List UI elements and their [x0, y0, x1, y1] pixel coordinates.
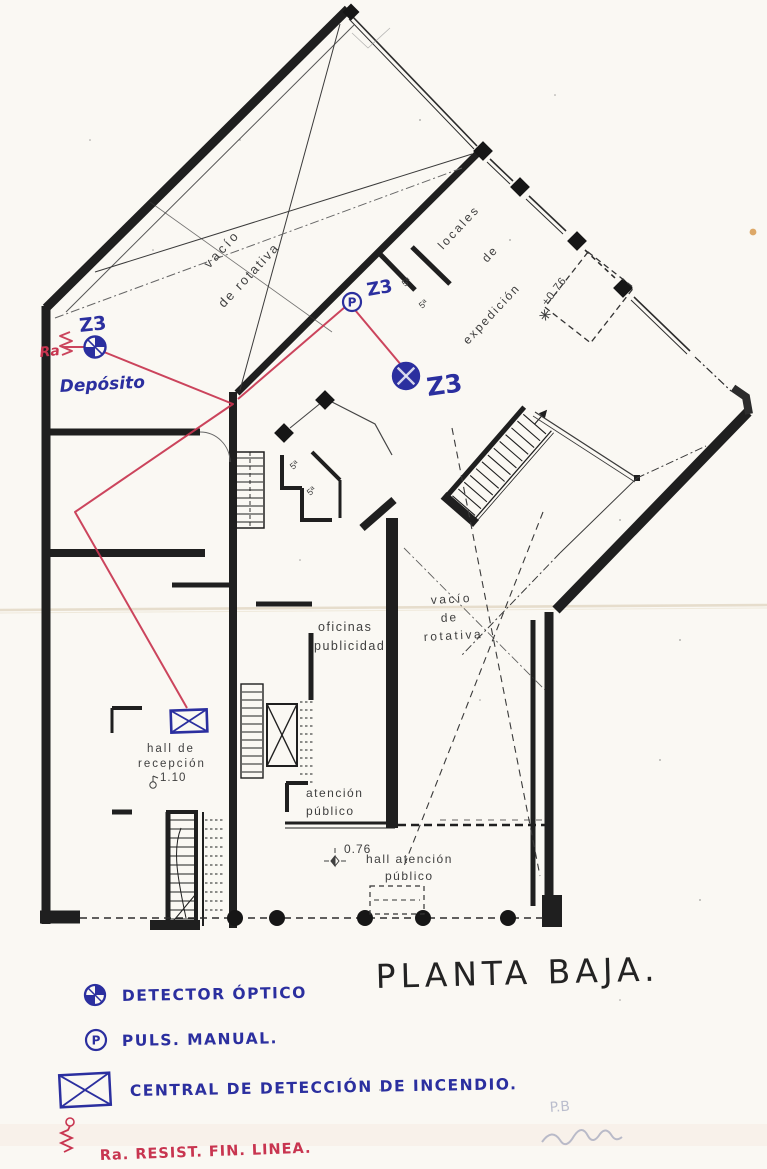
room-tag: 5ª	[288, 458, 301, 471]
reception-stair	[150, 812, 224, 928]
paper-stain	[750, 229, 757, 236]
reception-label-2: recepción	[138, 758, 206, 770]
manual-callpoint-icon: P	[343, 293, 361, 311]
resistor-tag: Ra	[39, 343, 61, 361]
pencil-initials: P.B	[549, 1099, 570, 1116]
room-tag: 5ª	[417, 297, 430, 310]
offices-label-2: publicidad	[314, 639, 385, 653]
svg-text:P: P	[92, 1034, 101, 1048]
diagonal-staircase	[441, 395, 563, 527]
paper-crease	[0, 605, 767, 1146]
expedition-level-mark: +0.76	[532, 275, 574, 322]
zone-label: Z3	[425, 368, 464, 402]
optical-detector-icon	[85, 985, 105, 1005]
zone-label: Z3	[78, 312, 107, 337]
exterior-walls	[40, 9, 748, 927]
attention-hall-level-mark	[324, 848, 346, 866]
attention-hall-label-1: hall atención	[366, 852, 453, 866]
attention-hall-label-2: público	[385, 869, 434, 883]
attention-label-1: atención	[306, 786, 363, 800]
rotary-void-right-lines	[404, 428, 545, 876]
facade-glazing	[349, 16, 749, 414]
upper-small-stair	[236, 452, 264, 528]
manual-callpoint-icon: P	[86, 1030, 106, 1050]
expedition-label-3: expedición	[460, 281, 523, 347]
expedition-label-2: de	[479, 243, 501, 265]
room-labels: vacío de rotativa locales de expedición …	[0, 0, 574, 883]
fire-panel-icon	[59, 1073, 111, 1108]
optical-detector-icon	[85, 337, 106, 358]
elevator-core	[241, 684, 313, 782]
rotary-void-right-label-1: vacío	[430, 591, 472, 607]
zone-label: Z3	[365, 276, 394, 301]
reception-label-1: hall de	[147, 743, 195, 755]
offices-label-1: oficinas	[318, 620, 372, 634]
rotary-void-top-lines	[55, 24, 472, 390]
reception-level: 1.10	[160, 772, 186, 784]
room-tag: 5ª	[305, 484, 318, 497]
optical-detector-icon	[393, 363, 419, 389]
floor-plan-drawing: vacío de rotativa locales de expedición …	[0, 0, 767, 1169]
page-title: PLANTA BAJA.	[375, 950, 660, 996]
svg-text:+0.76: +0.76	[540, 275, 570, 308]
end-of-line-resistor-icon	[60, 332, 72, 355]
svg-text:P: P	[348, 296, 357, 310]
expedition-dashed-dock	[545, 252, 634, 343]
reception-level-mark	[150, 776, 158, 788]
rotary-void-right-label-2: de	[440, 610, 458, 625]
scanned-floor-plan-sheet: vacío de rotativa locales de expedición …	[0, 0, 767, 1169]
legend-item-label: CENTRAL DE DETECCIÓN DE INCENDIO.	[130, 1074, 518, 1100]
legend-item-label: DETECTOR ÓPTICO	[122, 983, 307, 1005]
legend-item-label: PULS. MANUAL.	[122, 1029, 278, 1050]
attention-label-2: público	[306, 804, 355, 818]
fire-panel-icon	[171, 709, 208, 732]
void-partition	[462, 412, 706, 655]
deposito-label: Depósito	[59, 373, 145, 397]
expedition-label-1: locales	[435, 202, 483, 252]
